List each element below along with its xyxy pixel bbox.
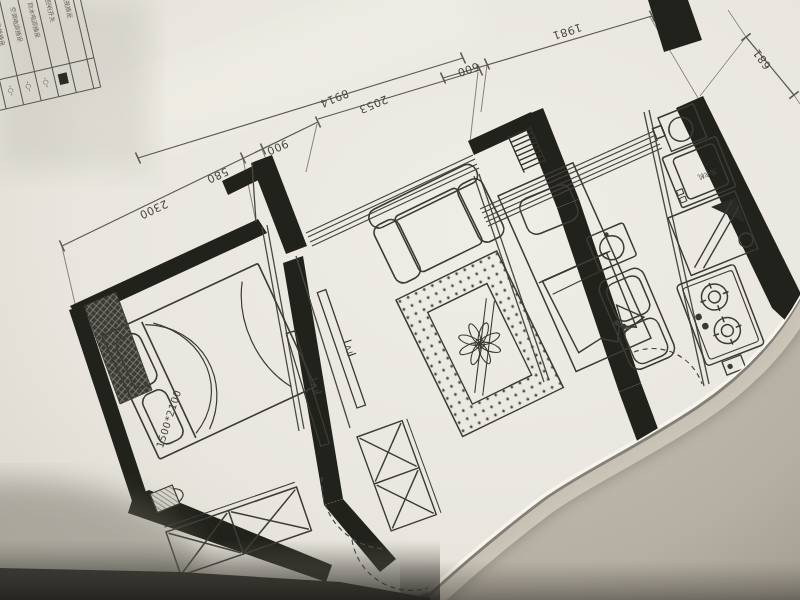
floorplan-photo-svg: 配电箱 单相二极插座 单相三极插座 空调电源插座 防水电源插座 照明开关 电视插… <box>0 0 800 600</box>
bottom-right-fade <box>400 560 800 600</box>
floorplan-photo: 配电箱 单相二极插座 单相三极插座 空调电源插座 防水电源插座 照明开关 电视插… <box>0 0 800 600</box>
bottom-fade <box>0 540 440 600</box>
